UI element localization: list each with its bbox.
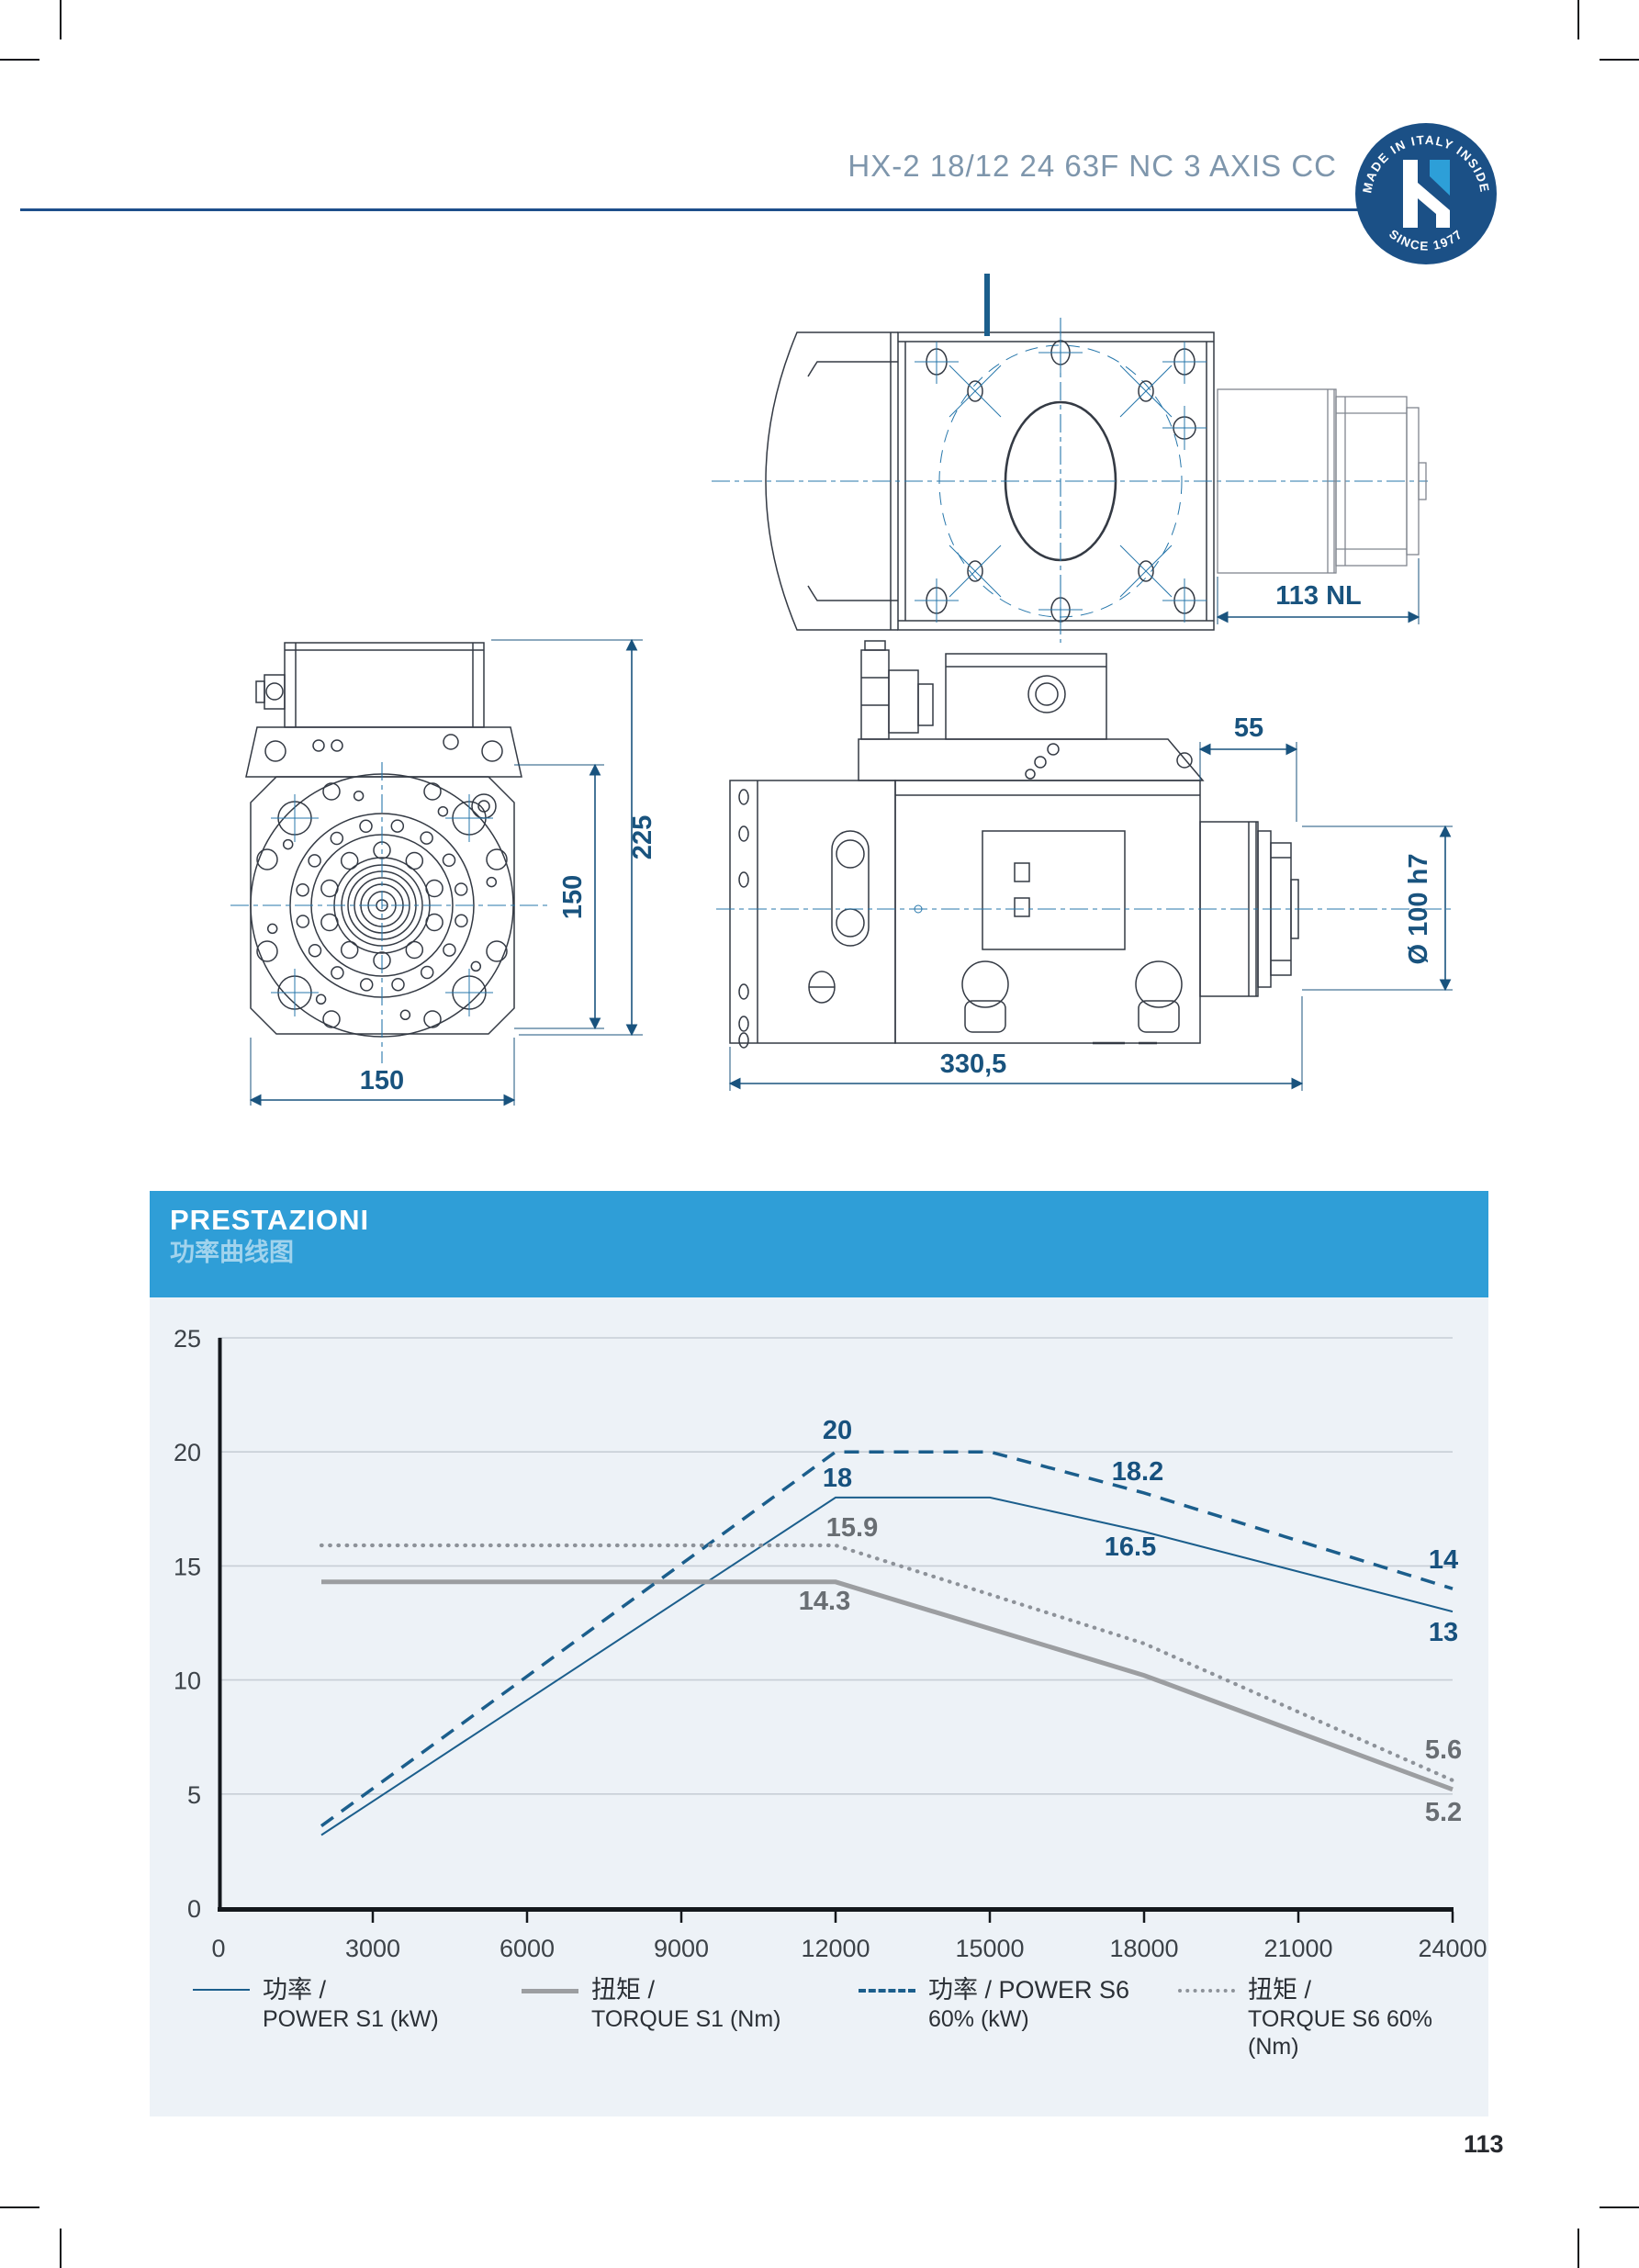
svg-text:5: 5 [187, 1781, 201, 1809]
svg-text:9000: 9000 [654, 1935, 709, 1962]
legend-label: 功率 / POWER S6 [928, 1974, 1129, 2005]
dimension-150-flange: 150 [558, 875, 588, 919]
svg-text:15000: 15000 [955, 1935, 1024, 1962]
legend-label: 扭矩 / [591, 1974, 781, 2005]
svg-text:12000: 12000 [801, 1935, 870, 1962]
svg-text:14: 14 [1429, 1545, 1458, 1575]
svg-text:21000: 21000 [1263, 1935, 1332, 1962]
legend-label: 功率 / [263, 1974, 439, 2005]
dimension-225: 225 [628, 815, 657, 859]
dimension-150-width: 150 [360, 1066, 404, 1095]
svg-text:24000: 24000 [1418, 1935, 1487, 1962]
panel-subtitle: 功率曲线图 [170, 1237, 1488, 1269]
crop-mark [1577, 2229, 1579, 2268]
svg-text:3000: 3000 [345, 1935, 400, 1962]
svg-text:15: 15 [174, 1553, 201, 1580]
dimension-113nl: 113 NL [1275, 581, 1362, 611]
crop-mark [0, 2206, 39, 2208]
crop-mark [1600, 2206, 1639, 2208]
legend-label: 60% (kW) [928, 2005, 1129, 2033]
legend-item-power-s6: 功率 / POWER S6 60% (kW) [859, 1974, 1129, 2033]
page-number: 113 [1464, 2130, 1504, 2159]
dimension-55: 55 [1234, 713, 1263, 743]
crop-mark [60, 2229, 62, 2268]
legend-item-torque-s6: 扭矩 / TORQUE S6 60% (Nm) [1178, 1974, 1488, 2060]
crop-mark [1600, 59, 1639, 61]
svg-text:0: 0 [211, 1935, 225, 1962]
made-in-italy-badge: MADE IN ITALY INSIDE SINCE 1977 [1352, 119, 1500, 268]
datasheet-page: HX-2 18/12 24 63F NC 3 AXIS CC MADE IN I… [0, 0, 1639, 2268]
legend-label: TORQUE S6 60% (Nm) [1248, 2005, 1488, 2060]
crop-mark [60, 0, 62, 39]
svg-text:10: 10 [174, 1667, 201, 1695]
svg-text:18.2: 18.2 [1112, 1457, 1163, 1487]
svg-text:25: 25 [174, 1325, 201, 1353]
svg-text:20: 20 [823, 1416, 852, 1445]
power-s1-swatch-icon [193, 1989, 250, 1991]
legend-item-power-s1: 功率 / POWER S1 (kW) [193, 1974, 439, 2033]
page-title: HX-2 18/12 24 63F NC 3 AXIS CC [848, 149, 1337, 184]
svg-text:20: 20 [174, 1439, 201, 1466]
top-view-drawing: 113 NL [707, 266, 1432, 643]
front-view-drawing: 225 150 150 [225, 634, 666, 1120]
legend-label: 扭矩 / [1248, 1974, 1488, 2005]
svg-text:16.5: 16.5 [1105, 1533, 1156, 1562]
torque-s1-swatch-icon [522, 1989, 578, 1993]
header-divider [20, 208, 1359, 211]
svg-text:0: 0 [187, 1895, 201, 1923]
performance-panel: 0510152025030006000900012000150001800021… [150, 1297, 1488, 2116]
svg-text:5.6: 5.6 [1425, 1735, 1462, 1765]
dimension-330-5: 330,5 [940, 1050, 1007, 1079]
crop-mark [0, 59, 39, 61]
legend-label: POWER S1 (kW) [263, 2005, 439, 2033]
panel-header: PRESTAZIONI 功率曲线图 [150, 1191, 1488, 1297]
torque-s6-swatch-icon [1178, 1989, 1235, 1993]
dimension-shaft-diameter: Ø 100 h7 [1404, 854, 1433, 965]
power-s6-swatch-icon [859, 1989, 915, 1993]
legend-item-torque-s1: 扭矩 / TORQUE S1 (Nm) [522, 1974, 781, 2033]
svg-text:18: 18 [823, 1464, 852, 1493]
svg-text:6000: 6000 [500, 1935, 555, 1962]
legend-label: TORQUE S1 (Nm) [591, 2005, 781, 2033]
svg-text:15.9: 15.9 [826, 1513, 878, 1543]
crop-mark [1577, 0, 1579, 39]
side-view-drawing: 55 Ø 100 h7 330,5 [707, 634, 1460, 1111]
svg-text:14.3: 14.3 [799, 1587, 850, 1616]
svg-text:13: 13 [1429, 1618, 1458, 1647]
svg-text:18000: 18000 [1109, 1935, 1178, 1962]
panel-title: PRESTAZIONI [170, 1204, 1488, 1237]
svg-text:5.2: 5.2 [1425, 1798, 1462, 1827]
